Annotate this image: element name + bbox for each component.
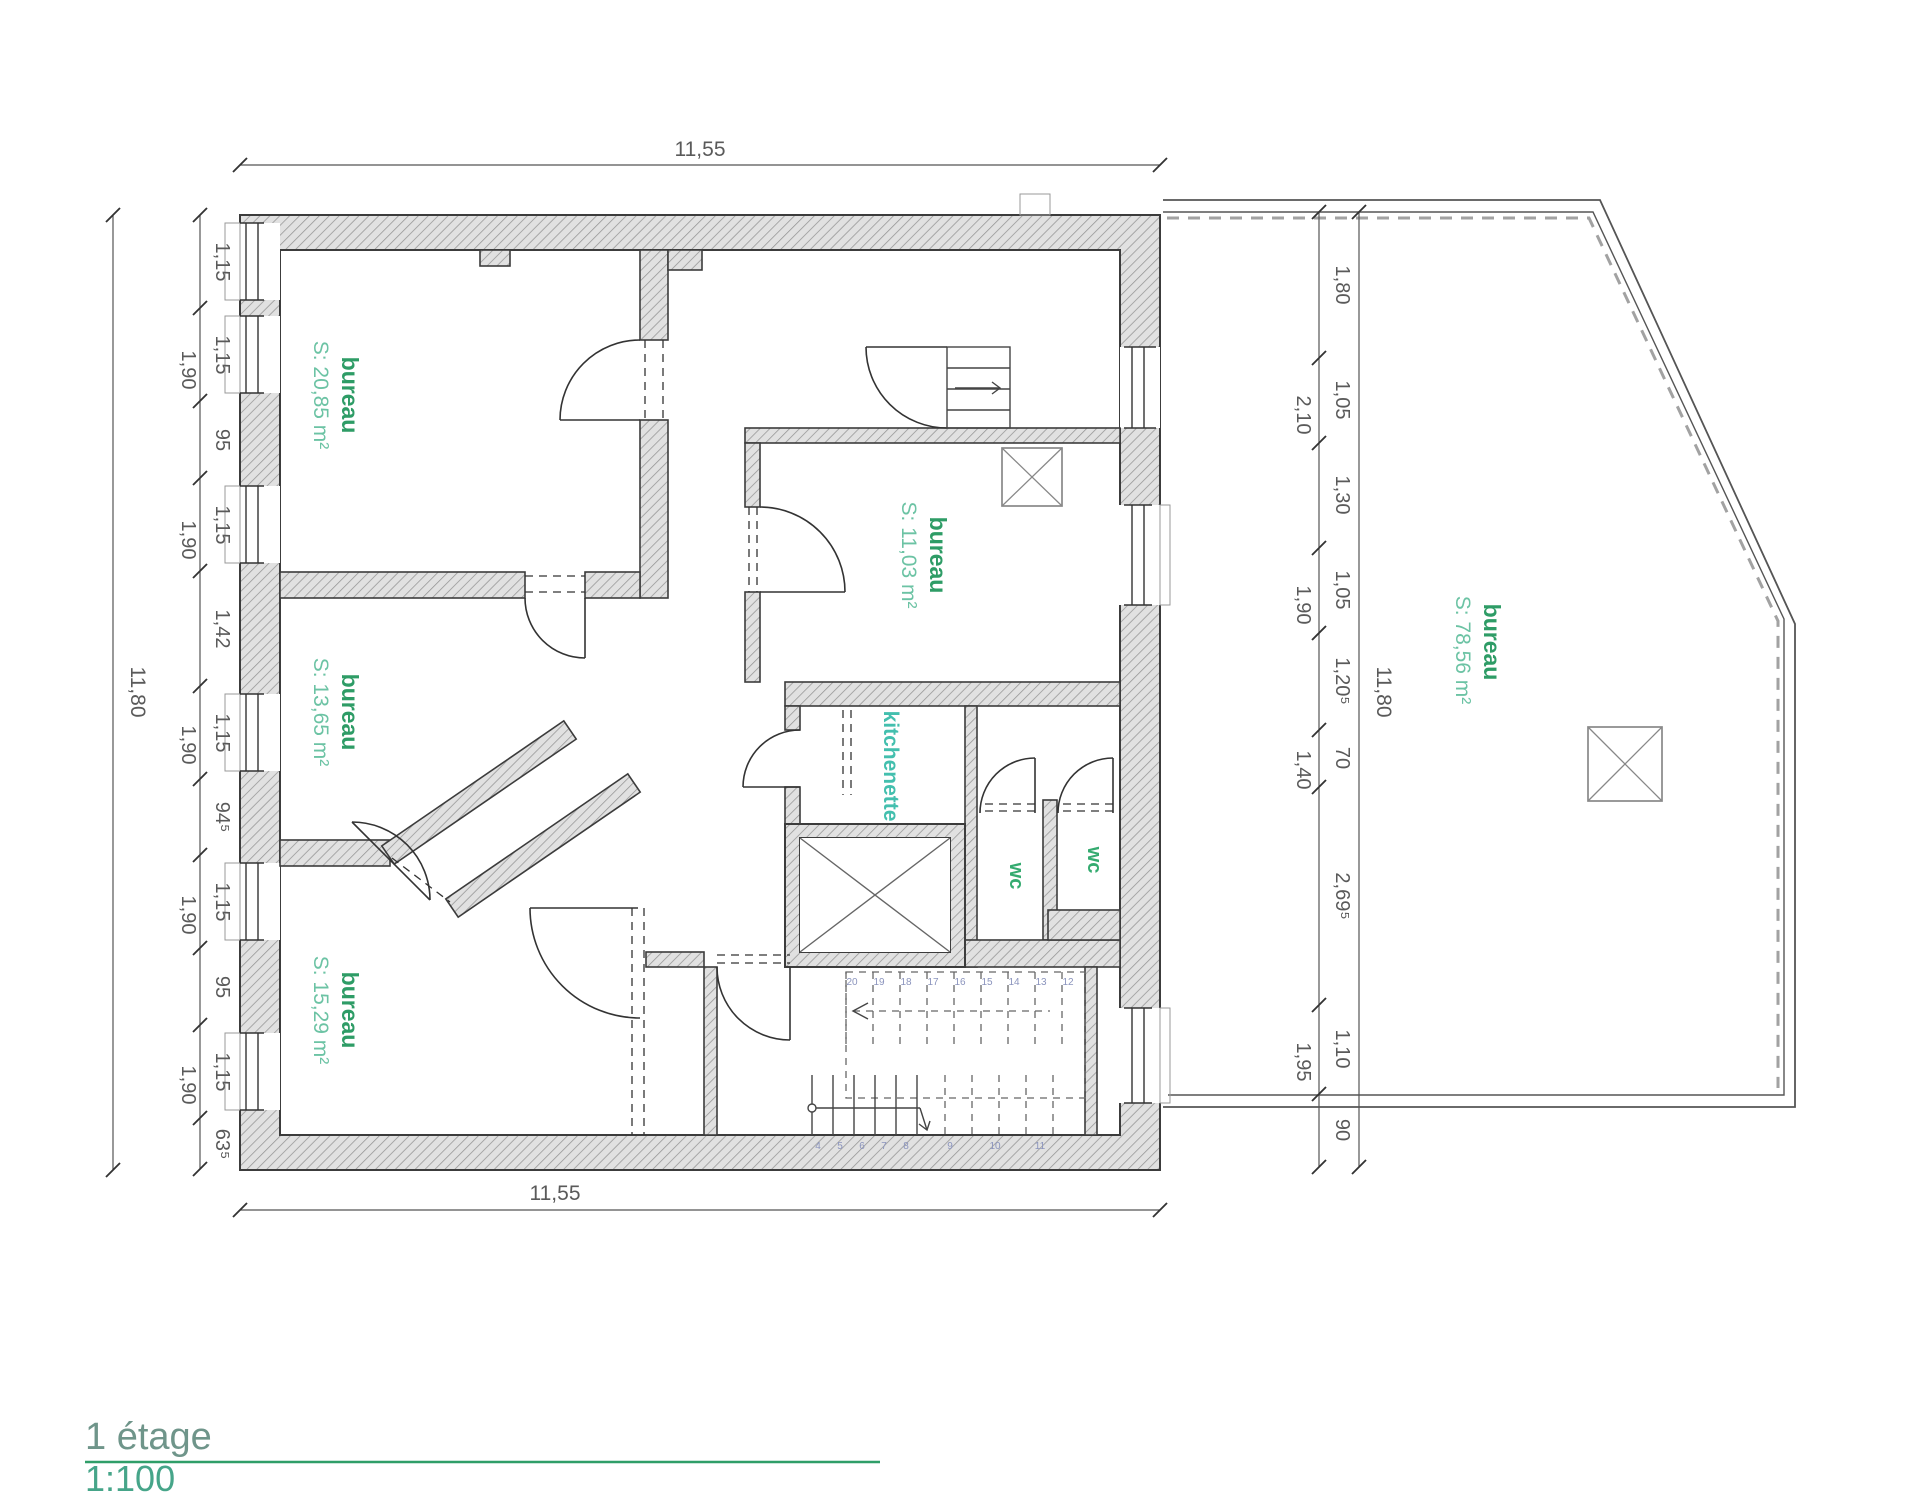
dimension-value: 94⁵ [211, 802, 233, 833]
terrace-door [1120, 347, 1160, 428]
room-label-wc-right: wc [1083, 846, 1105, 874]
dimension-value: 1,15 [211, 883, 233, 922]
dimension-value: 63⁵ [211, 1129, 233, 1160]
dimension-value: 1,20⁵ [1331, 657, 1353, 704]
step-number: 18 [900, 977, 912, 988]
dimension-value: 1,80 [1331, 266, 1353, 305]
dimension-top: 11,55 [233, 138, 1167, 172]
room-area: S: 11,03 m² [897, 502, 920, 609]
door [760, 507, 845, 592]
dimension-right-total: 11,80 [1352, 205, 1395, 1174]
step-number: 20 [846, 977, 858, 988]
step-number: 10 [989, 1141, 1001, 1152]
dimension-value: 1,15 [211, 243, 233, 282]
room-label-bureau-mid-left: bureau S: 13,65 m² [309, 658, 363, 767]
dimension-value: 1,05 [1331, 571, 1353, 610]
door [980, 758, 1035, 813]
door [866, 347, 947, 428]
room-area: S: 15,29 m² [309, 956, 332, 1065]
dimension-value: 2,69⁵ [1331, 872, 1353, 919]
room-label-bureau-top-left: bureau S: 20,85 m² [309, 341, 363, 450]
room-name: bureau [337, 357, 363, 434]
door [530, 908, 640, 1018]
step-number: 7 [881, 1141, 887, 1152]
stair-upper-run [846, 972, 1085, 1098]
room-name: bureau [337, 674, 363, 751]
step-number: 13 [1035, 977, 1047, 988]
step-number: 12 [1062, 977, 1074, 988]
dimension-value: 11,55 [675, 138, 726, 161]
step-number: 6 [859, 1141, 865, 1152]
dimension-value: 11,55 [530, 1182, 581, 1205]
window [1112, 505, 1170, 605]
floor-title: 1 étage [85, 1416, 212, 1458]
step-number: 14 [1008, 977, 1020, 988]
room-name: bureau [337, 972, 363, 1049]
axis-value: 1,95 [1292, 1043, 1314, 1082]
axis-value: 2,10 [1292, 396, 1314, 435]
step-number: 5 [837, 1141, 843, 1152]
room-label-bureau-terrace: bureau S: 78,56 m² [1451, 596, 1505, 705]
step-number: 11 [1035, 1141, 1046, 1152]
dimension-bottom: 11,55 [233, 1182, 1167, 1217]
floor-plan-drawing: 20 19 18 17 16 15 14 13 12 4 5 6 7 8 9 1… [0, 0, 1919, 1494]
axis-value: 1,90 [177, 726, 199, 765]
dimension-value: 1,42 [211, 610, 233, 649]
dimension-value: 1,05 [1331, 381, 1353, 420]
dimension-value: 11,80 [126, 667, 149, 718]
step-number: 19 [873, 977, 885, 988]
dimension-value: 1,15 [211, 714, 233, 753]
door [743, 730, 800, 787]
window [1112, 1008, 1170, 1103]
door [560, 340, 640, 420]
room-area: S: 13,65 m² [309, 658, 332, 767]
axis-value: 1,90 [177, 521, 199, 560]
dimension-value: 1,15 [211, 1053, 233, 1092]
terrace [1163, 200, 1795, 1107]
top-wall-notch [1020, 194, 1050, 215]
elevator [785, 824, 965, 967]
axis-value: 1,90 [177, 351, 199, 390]
dimension-value: 1,15 [211, 336, 233, 375]
dimension-value: 95 [211, 976, 233, 998]
step-number: 4 [815, 1141, 821, 1152]
room-label-bureau-center: bureau S: 11,03 m² [897, 502, 951, 609]
title-block: 1 étage 1:100 [85, 1416, 880, 1494]
dimension-value: 95 [211, 429, 233, 451]
shaft-column [1002, 448, 1062, 506]
room-label-kitchenette: kitchenette [879, 711, 902, 822]
dimension-left-total: 11,80 [106, 208, 149, 1177]
step-number: 15 [981, 977, 993, 988]
step-number: 16 [954, 977, 966, 988]
axis-value: 1,40 [1292, 751, 1314, 790]
room-area: S: 20,85 m² [309, 341, 332, 450]
step-number: 8 [903, 1141, 909, 1152]
dimension-value: 70 [1331, 747, 1353, 769]
axis-value: 1,90 [1292, 586, 1314, 625]
dimension-value: 1,30 [1331, 476, 1353, 515]
main-building: 20 19 18 17 16 15 14 13 12 4 5 6 7 8 9 1… [225, 194, 1170, 1170]
room-name: bureau [925, 517, 951, 594]
terrace-column [1588, 727, 1662, 801]
stair-lower-run [808, 1075, 1053, 1135]
room-label-bureau-bottom-left: bureau S: 15,29 m² [309, 956, 363, 1065]
step-number: 17 [927, 977, 939, 988]
main-staircase: 20 19 18 17 16 15 14 13 12 4 5 6 7 8 9 1… [808, 972, 1085, 1152]
door [717, 967, 790, 1040]
door [1058, 758, 1113, 813]
dimension-value: 11,80 [1372, 667, 1395, 718]
dimension-value: 1,10 [1331, 1030, 1353, 1069]
axis-value: 1,90 [177, 896, 199, 935]
room-area: S: 78,56 m² [1451, 596, 1474, 705]
dimension-value: 90 [1331, 1119, 1353, 1141]
scale-label: 1:100 [85, 1458, 175, 1494]
floor-plan-page: 20 19 18 17 16 15 14 13 12 4 5 6 7 8 9 1… [0, 0, 1919, 1494]
room-name: bureau [1479, 604, 1505, 681]
dimension-middle-chain: 1,80 1,05 1,30 1,05 1,20⁵ 70 2,69⁵ 1,10 … [1292, 205, 1353, 1174]
terrace-outer-edge [1163, 200, 1795, 1107]
door [525, 598, 585, 658]
step-number: 9 [947, 1141, 953, 1152]
dimension-left-chain: 1,15 1,15 95 1,15 1,42 1,15 94⁵ 1,15 95 … [177, 208, 233, 1176]
room-label-wc-left: wc [1005, 862, 1027, 890]
dimension-value: 1,15 [211, 506, 233, 545]
upper-right-stair [947, 347, 1010, 428]
axis-value: 1,90 [177, 1066, 199, 1105]
